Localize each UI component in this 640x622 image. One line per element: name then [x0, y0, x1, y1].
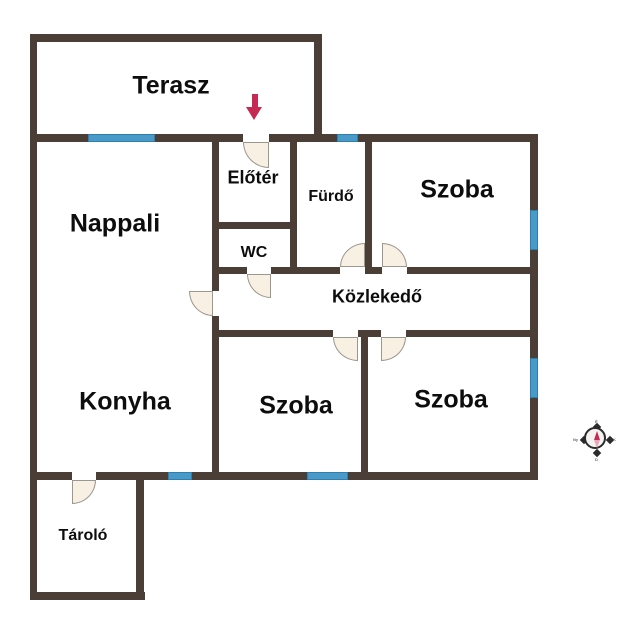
wall-outer-bottom [30, 472, 538, 480]
wall-eloter-wc [219, 222, 290, 229]
compass-label-west: Ny [573, 437, 578, 442]
room-label-nappali: Nappali [70, 210, 160, 239]
door-opening-szoba-3 [381, 330, 406, 337]
compass-rose: É K D Ny [580, 423, 614, 457]
room-label-szoba-2: Szoba [259, 392, 333, 421]
room-label-terasz: Terasz [132, 72, 209, 101]
wall-terasz-top [30, 34, 322, 42]
door-opening-furdo [340, 267, 365, 274]
room-label-konyha: Konyha [79, 388, 171, 417]
compass-needle-north-icon [594, 431, 600, 440]
compass-needle-south-icon [594, 440, 600, 448]
wall-tarolo-right [136, 480, 144, 600]
door-szoba-1 [382, 243, 407, 267]
wall-outer-left [30, 34, 37, 480]
door-entrance [243, 142, 269, 168]
door-opening-wc [247, 267, 271, 274]
compass-label-east: K [613, 437, 616, 442]
room-label-wc: WC [241, 244, 268, 262]
door-furdo [340, 243, 365, 267]
entrance-arrow-icon [252, 94, 258, 108]
room-label-szoba-1: Szoba [420, 176, 494, 205]
window-furdo-top [337, 134, 358, 142]
wall-terasz-right [314, 34, 322, 134]
entrance-arrow-head-icon [246, 107, 262, 120]
door-opening-entrance [243, 134, 269, 142]
room-label-eloter: Előtér [227, 168, 278, 189]
door-nappali [189, 291, 213, 316]
wall-tarolo-left [30, 480, 37, 600]
door-opening-tarolo [72, 472, 96, 480]
door-opening-szoba-2 [333, 330, 358, 337]
window-nappali-top [88, 134, 155, 142]
room-label-furdo: Fürdő [308, 188, 353, 206]
wall-szoba1-left [365, 142, 372, 274]
wall-szoba-divider [361, 330, 368, 472]
door-opening-nappali [212, 291, 219, 316]
door-opening-szoba-1 [382, 267, 407, 274]
door-szoba-2 [333, 337, 358, 361]
compass-point-south-icon [593, 449, 601, 457]
room-label-tarolo: Tároló [59, 527, 108, 545]
window-konyha-bottom [168, 472, 192, 480]
room-label-szoba-3: Szoba [414, 386, 488, 415]
floor-plan: É K D Ny TeraszNappaliElőtérFürdőSzobaWC… [0, 0, 640, 622]
wall-kozlekedo-bottom [219, 330, 530, 337]
door-tarolo [72, 480, 96, 504]
wall-tarolo-bottom [30, 592, 145, 600]
compass-label-north: É [595, 419, 598, 424]
window-szoba3-right [530, 358, 538, 398]
window-szoba1-right [530, 210, 538, 250]
wall-outer-right [530, 134, 538, 480]
door-wc [247, 274, 271, 298]
door-szoba-3 [381, 337, 406, 361]
wall-eloter-furdo [290, 142, 297, 274]
compass-label-south: D [595, 457, 598, 462]
compass-ring [584, 427, 606, 449]
window-szoba2-bottom [307, 472, 348, 480]
room-label-kozlekedo: Közlekedő [332, 287, 422, 308]
